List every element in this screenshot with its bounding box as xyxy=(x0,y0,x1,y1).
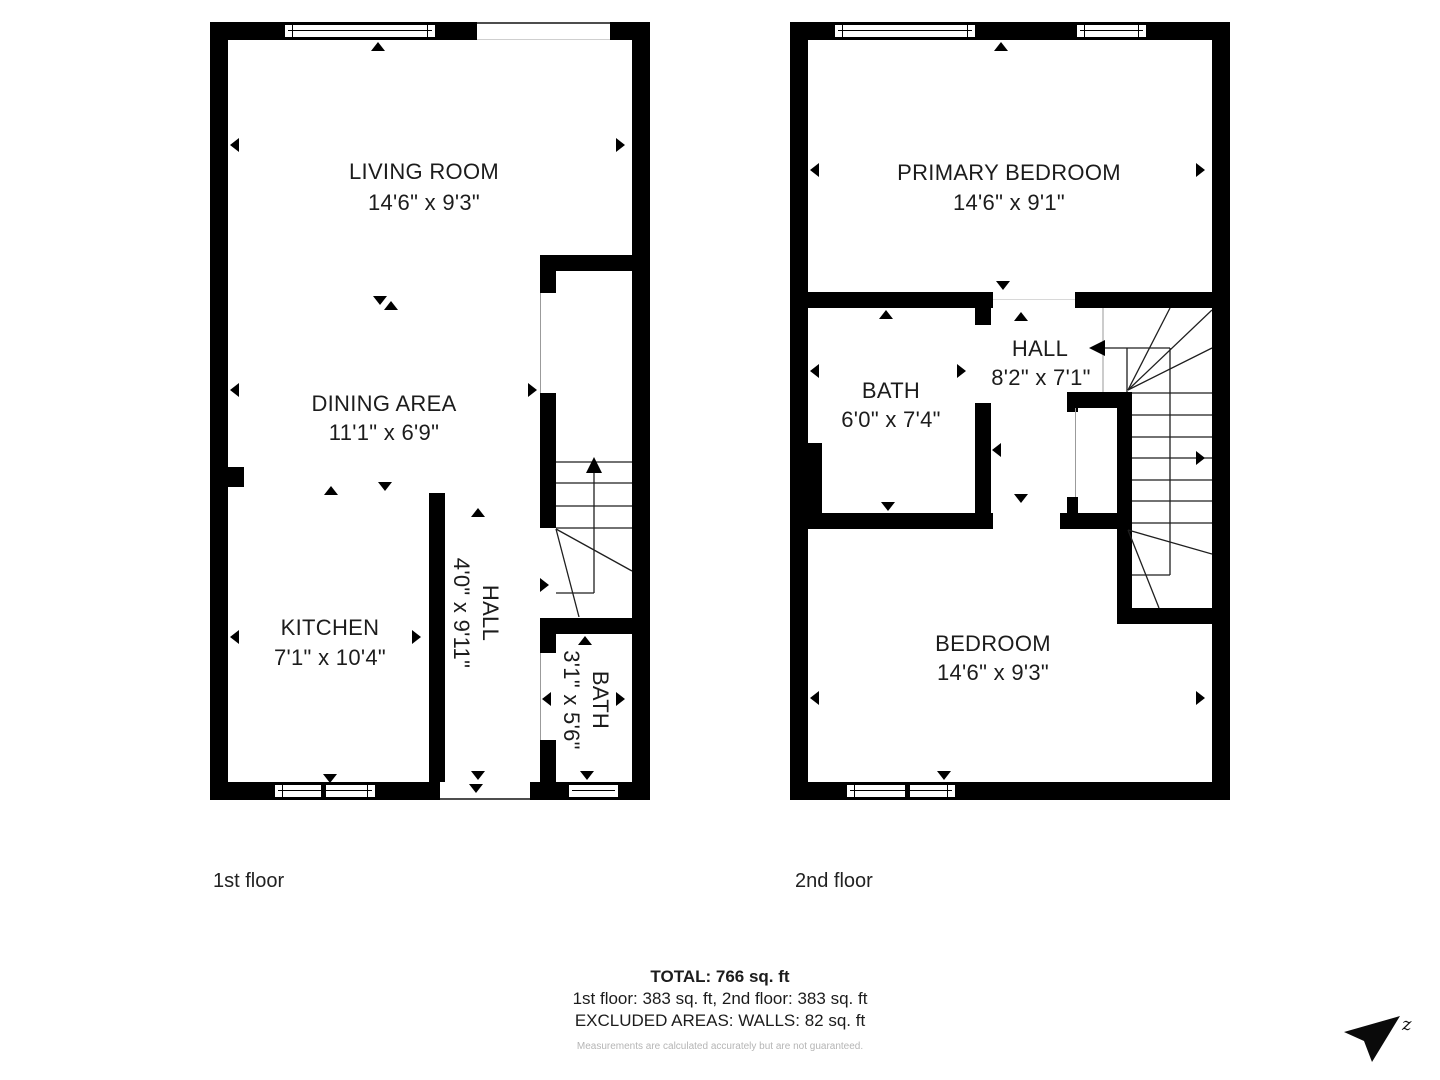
measure-arrow-icon xyxy=(616,138,625,152)
door-opening-line xyxy=(540,653,541,740)
door-opening-line xyxy=(540,293,541,393)
window xyxy=(283,23,437,39)
wall xyxy=(540,255,556,293)
wall xyxy=(808,443,822,515)
wall xyxy=(228,467,244,487)
stair-direction-arrow-icon xyxy=(586,457,602,473)
floor-caption-1st: 1st floor xyxy=(213,870,284,893)
measure-arrow-icon xyxy=(810,364,819,378)
room-label-living-room: LIVING ROOM xyxy=(349,159,499,185)
wall xyxy=(540,634,556,653)
room-label-primary-bedroom: PRIMARY BEDROOM xyxy=(897,160,1121,186)
wall xyxy=(975,308,991,325)
window xyxy=(567,783,620,799)
measure-arrow-icon xyxy=(1014,312,1028,321)
floor-plan-1st-floor: LIVING ROOM 14'6" x 9'3" DINING AREA 11'… xyxy=(210,22,650,800)
room-dims-primary-bedroom: 14'6" x 9'1" xyxy=(953,190,1065,216)
window xyxy=(845,783,957,799)
measure-arrow-icon xyxy=(471,771,485,780)
measure-arrow-icon xyxy=(412,630,421,644)
stair-direction-arrow-icon xyxy=(1089,340,1105,356)
measure-arrow-icon xyxy=(881,502,895,511)
room-label-hall-name: HALL xyxy=(476,558,505,668)
room-dims-kitchen: 7'1" x 10'4" xyxy=(274,645,386,671)
room-dims-bedroom: 14'6" x 9'3" xyxy=(937,660,1049,686)
wall xyxy=(1212,22,1230,800)
room-label-bath-name: BATH xyxy=(586,650,615,750)
measure-arrow-icon xyxy=(378,482,392,491)
room-dims-bath: 3'1" x 5'6" xyxy=(557,650,586,750)
disclaimer-text: Measurements are calculated accurately b… xyxy=(0,1041,1440,1052)
window xyxy=(833,23,977,39)
measure-arrow-icon xyxy=(469,784,483,793)
measure-arrow-icon xyxy=(580,771,594,780)
measure-arrow-icon xyxy=(1014,494,1028,503)
measure-arrow-icon xyxy=(371,42,385,51)
measure-arrow-icon xyxy=(528,383,537,397)
entry-door-opening xyxy=(440,782,530,800)
measure-arrow-icon xyxy=(908,518,922,527)
measure-arrow-icon xyxy=(937,771,951,780)
room-label-hall: HALL 4'0" x 9'11" xyxy=(447,558,505,668)
room-dims-bath-2f: 6'0" x 7'4" xyxy=(841,407,941,433)
wall xyxy=(790,292,993,308)
room-label-bedroom: BEDROOM xyxy=(935,631,1051,657)
measure-arrow-icon xyxy=(578,636,592,645)
door-opening-line xyxy=(993,299,1075,300)
measure-arrow-icon xyxy=(1196,691,1205,705)
room-label-bath-2f: BATH xyxy=(862,378,920,404)
window xyxy=(273,783,377,799)
room-dims-hall-2f: 8'2" x 7'1" xyxy=(991,365,1091,391)
measure-arrow-icon xyxy=(230,383,239,397)
wall xyxy=(540,740,556,782)
room-dims-living-room: 14'6" x 9'3" xyxy=(368,190,480,216)
wall xyxy=(975,403,991,515)
room-label-bath: BATH 3'1" x 5'6" xyxy=(557,650,615,750)
stairs-up-icon xyxy=(552,447,634,617)
floor-plan-2nd-floor: PRIMARY BEDROOM 14'6" x 9'1" BATH 6'0" x… xyxy=(790,22,1230,800)
wall xyxy=(210,22,228,800)
wall xyxy=(790,513,993,529)
measure-arrow-icon xyxy=(994,42,1008,51)
measure-arrow-icon xyxy=(323,774,337,783)
floor-areas-text: 1st floor: 383 sq. ft, 2nd floor: 383 sq… xyxy=(0,988,1440,1010)
wall xyxy=(632,22,650,800)
measure-arrow-icon xyxy=(957,364,966,378)
floor-plan-page: LIVING ROOM 14'6" x 9'3" DINING AREA 11'… xyxy=(0,0,1440,1080)
measure-arrow-icon xyxy=(1196,163,1205,177)
stairs-down-icon xyxy=(1075,302,1212,608)
measure-arrow-icon xyxy=(471,508,485,517)
measure-arrow-icon xyxy=(384,301,398,310)
room-label-kitchen: KITCHEN xyxy=(281,615,380,641)
room-dims-hall: 4'0" x 9'11" xyxy=(447,558,476,668)
measure-arrow-icon xyxy=(324,486,338,495)
measure-arrow-icon xyxy=(542,692,551,706)
floor-caption-2nd: 2nd floor xyxy=(795,870,873,893)
wall xyxy=(540,618,632,634)
measure-arrow-icon xyxy=(230,138,239,152)
measure-arrow-icon xyxy=(879,310,893,319)
excluded-areas-text: EXCLUDED AREAS: WALLS: 82 sq. ft xyxy=(0,1010,1440,1032)
room-dims-dining-area: 11'1" x 6'9" xyxy=(329,420,439,446)
measure-arrow-icon xyxy=(1196,451,1205,465)
north-arrow-icon: z xyxy=(1338,1010,1434,1074)
measure-arrow-icon xyxy=(996,281,1010,290)
wall xyxy=(1117,608,1230,624)
compass-letter: z xyxy=(1401,1014,1412,1035)
wall xyxy=(429,493,445,782)
measure-arrow-icon xyxy=(540,578,549,592)
measure-arrow-icon xyxy=(810,163,819,177)
measure-arrow-icon xyxy=(810,691,819,705)
area-summary: TOTAL: 766 sq. ft 1st floor: 383 sq. ft,… xyxy=(0,966,1440,1052)
measure-arrow-icon xyxy=(429,578,438,592)
total-area-text: TOTAL: 766 sq. ft xyxy=(0,966,1440,988)
window xyxy=(1075,23,1148,39)
room-label-hall-2f: HALL xyxy=(1012,336,1068,362)
wall xyxy=(790,22,808,800)
wall-opening xyxy=(477,22,610,40)
measure-arrow-icon xyxy=(230,630,239,644)
measure-arrow-icon xyxy=(992,443,1001,457)
measure-arrow-icon xyxy=(616,692,625,706)
room-label-dining-area: DINING AREA xyxy=(311,391,456,417)
